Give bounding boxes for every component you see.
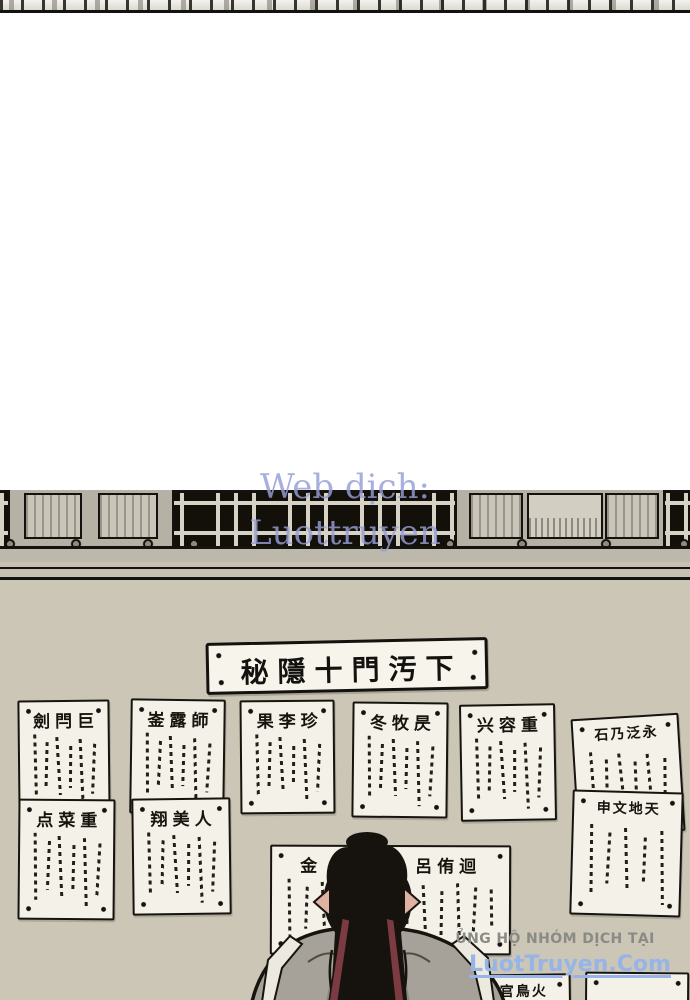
scribble-column: [182, 745, 186, 786]
scribble-column: [488, 746, 491, 792]
ear-left: [314, 888, 330, 916]
scribble-column: [34, 833, 37, 900]
scribble-column: [391, 739, 396, 796]
notice-title: 劍閂巨: [19, 707, 107, 732]
scribble-column: [55, 737, 61, 795]
scribble-column: [198, 837, 204, 903]
scribble-column: [267, 742, 271, 786]
scribble-column: [71, 845, 75, 889]
scribble-column: [68, 746, 71, 788]
scribble-column: [58, 836, 63, 897]
scribble-column: [624, 828, 628, 892]
pillar-panel: [98, 493, 158, 539]
scribble-column: [187, 844, 190, 886]
scribble-column: [255, 734, 259, 795]
scribble-text: [251, 734, 325, 804]
notice-paper: 申文地天: [569, 789, 683, 917]
pillar-panel: [605, 493, 659, 539]
notice-title: 冬牧昃: [354, 709, 446, 734]
notice-paper: 兴容重: [459, 703, 557, 822]
notice-title: 兴容重: [461, 710, 553, 736]
scribble-column: [45, 742, 49, 788]
scribble-column: [79, 739, 85, 805]
scribble-column: [368, 736, 371, 798]
sect-banner-sign: 秘隱十門汚下: [205, 637, 488, 695]
notice-paper: [585, 972, 690, 1000]
scribble-column: [205, 743, 211, 792]
scribble-text: [581, 824, 672, 906]
notice-title: 申文地天: [574, 797, 682, 824]
scribble-column: [147, 832, 151, 895]
scribble-column: [537, 747, 541, 797]
scribble-column: [157, 741, 162, 786]
scribble-column: [589, 824, 592, 894]
scribble-column: [416, 741, 420, 806]
notice-title: 点菜重: [20, 806, 113, 831]
scribble-column: [642, 837, 647, 883]
scribble-text: [29, 734, 100, 807]
scribble-column: [279, 737, 285, 792]
scribble-column: [513, 750, 516, 792]
scribble-text: [471, 737, 546, 810]
scribble-column: [211, 842, 216, 892]
wall-pillar: [455, 490, 665, 546]
banner-text: 秘隱十門汚下: [209, 646, 486, 692]
scribble-column: [379, 744, 384, 790]
scribble-column: [83, 838, 87, 908]
scribble-column: [169, 736, 174, 792]
scribble-text: [140, 732, 214, 803]
scribble-column: [33, 734, 37, 797]
scribble-column: [161, 840, 165, 886]
ear-right: [404, 888, 420, 916]
scribble-text: [363, 736, 438, 808]
wall-trim: [0, 562, 690, 578]
scribble-text: [143, 832, 221, 905]
notice-paper: 冬牧昃: [351, 702, 448, 819]
scribble-column: [316, 744, 321, 792]
scribble-column: [95, 843, 101, 896]
notice-title: 崟露師: [132, 705, 223, 730]
scribble-column: [606, 832, 612, 883]
comic-page: Web dịch: Luottruyen 秘隱十門汚下 劍閂巨 崟露師 果李珍 …: [0, 0, 690, 1000]
scribble-column: [172, 835, 178, 893]
scribble-column: [660, 831, 663, 905]
scribble-column: [91, 744, 96, 794]
scribble-column: [428, 746, 434, 796]
notice-paper: 点菜重: [17, 799, 115, 921]
scribble-column: [146, 733, 149, 795]
scribble-column: [45, 841, 50, 890]
scribble-column: [499, 741, 506, 799]
notice-title: 翔美人: [133, 804, 228, 829]
person-figure: [238, 830, 518, 1000]
scribble-column: [404, 748, 408, 789]
wall-line: [0, 567, 690, 569]
pillar-panel: [469, 493, 523, 539]
scribble-column: [524, 743, 530, 809]
scribble-column: [475, 739, 480, 802]
scribble-column: [303, 739, 308, 803]
notice-title: 石乃泛永: [573, 720, 678, 750]
previous-panel-edge: [0, 0, 690, 13]
scribble-text: [29, 833, 105, 910]
notice-title: 果李珍: [242, 707, 333, 732]
hair-topknot: [346, 832, 388, 852]
pillar-panel: [24, 493, 82, 539]
pillar-panel: [527, 493, 603, 539]
notice-paper: 果李珍: [240, 700, 336, 815]
notice-paper: 翔美人: [131, 797, 231, 915]
scribble-column: [194, 738, 198, 802]
notice-title: [587, 979, 687, 1000]
scribble-column: [292, 746, 295, 786]
